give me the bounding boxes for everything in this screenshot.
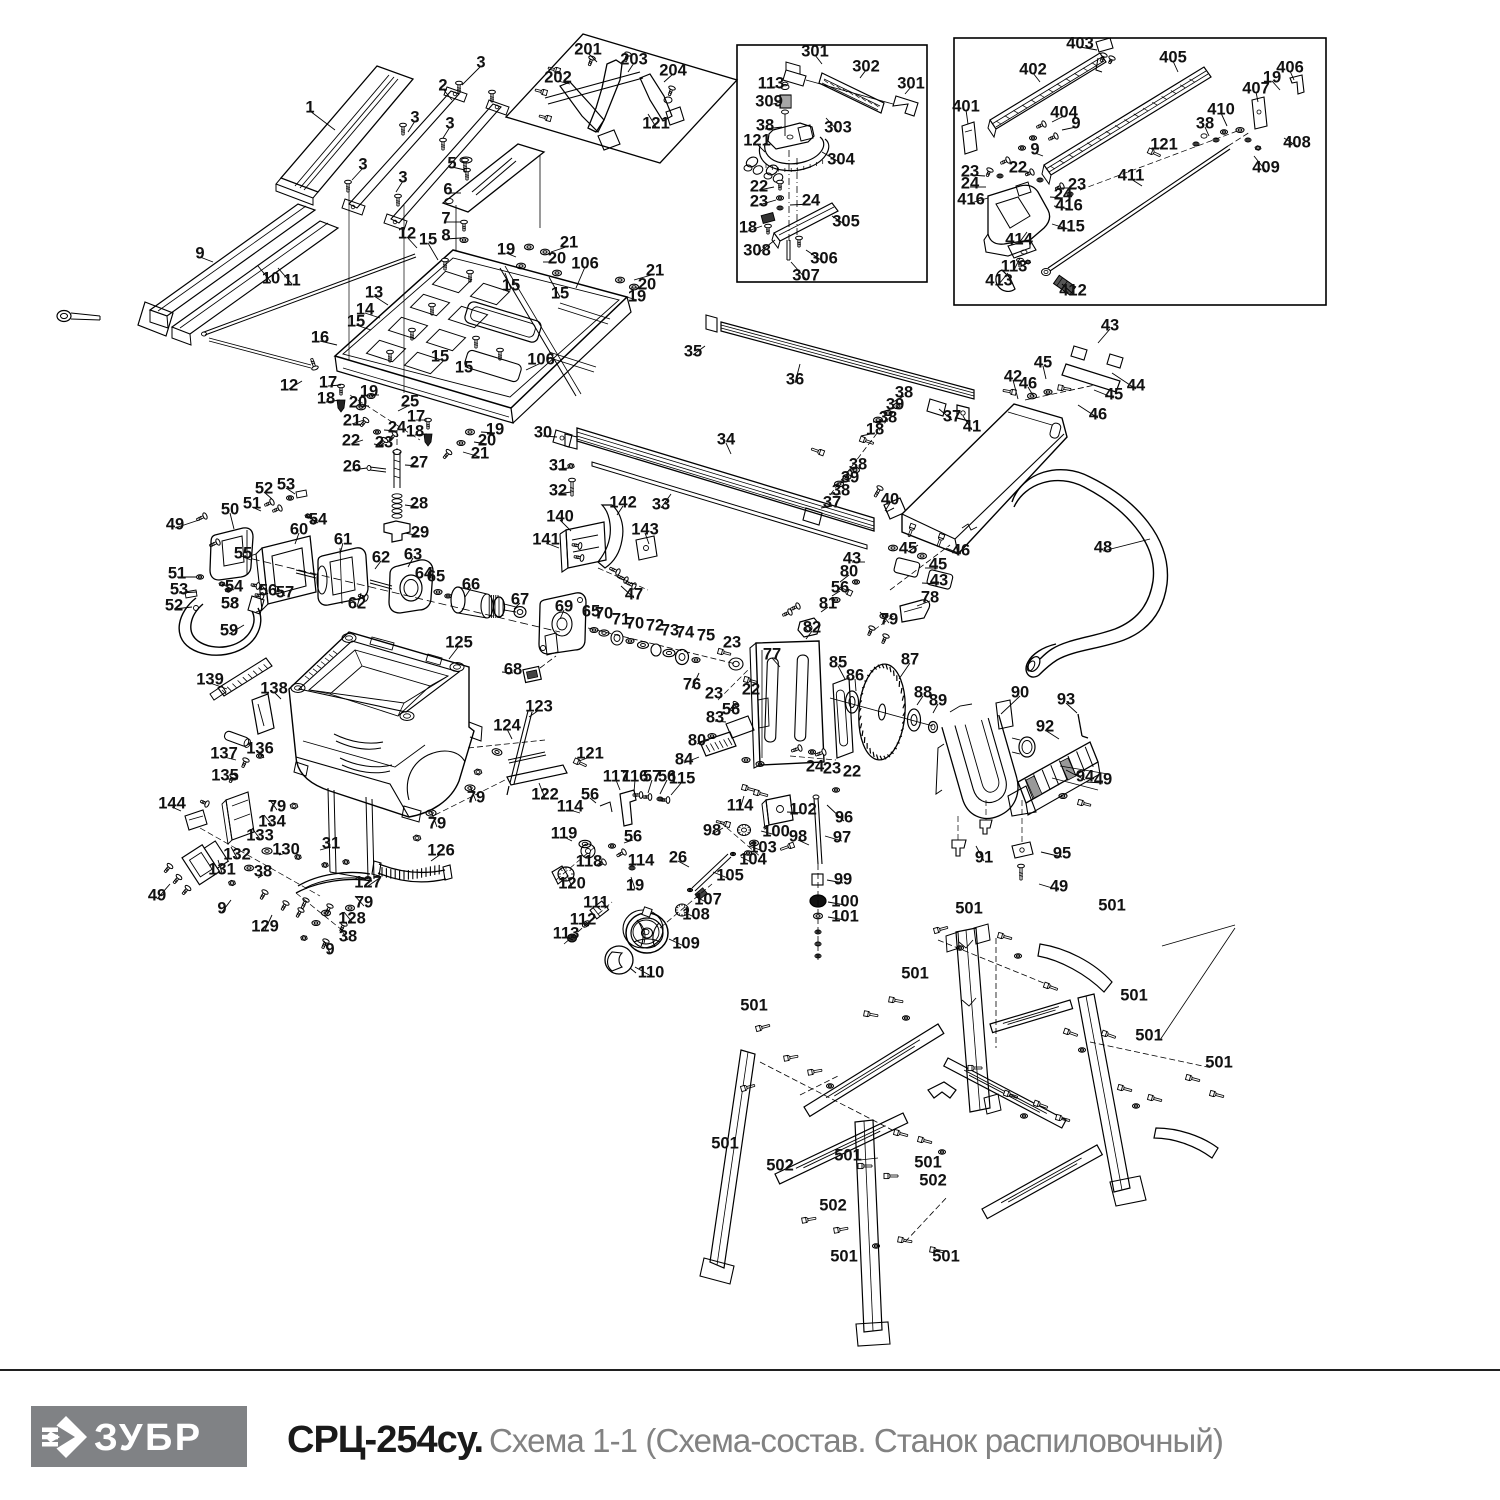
svg-text:50: 50 [221, 500, 239, 518]
svg-text:3: 3 [358, 155, 367, 173]
svg-text:56: 56 [722, 700, 740, 718]
svg-text:402: 402 [1019, 60, 1047, 78]
svg-text:51: 51 [243, 494, 261, 512]
svg-text:30: 30 [534, 423, 552, 441]
svg-text:203: 203 [620, 50, 648, 68]
svg-text:21: 21 [560, 233, 578, 251]
svg-text:22: 22 [342, 431, 360, 449]
svg-text:9: 9 [1030, 140, 1039, 158]
svg-text:501: 501 [830, 1247, 858, 1265]
svg-text:49: 49 [148, 886, 166, 904]
svg-text:121: 121 [642, 114, 670, 132]
svg-text:18: 18 [739, 218, 757, 236]
svg-text:22: 22 [843, 762, 861, 780]
svg-text:131: 131 [208, 860, 236, 878]
svg-text:37: 37 [823, 493, 841, 511]
svg-text:36: 36 [786, 370, 804, 388]
svg-text:415: 415 [1057, 217, 1085, 235]
svg-text:306: 306 [810, 249, 838, 267]
svg-text:29: 29 [411, 523, 429, 541]
svg-text:202: 202 [544, 68, 572, 86]
svg-text:9: 9 [1071, 114, 1080, 132]
svg-text:411: 411 [1118, 166, 1145, 184]
svg-text:114: 114 [727, 796, 754, 814]
svg-text:97: 97 [833, 828, 851, 846]
svg-text:62: 62 [348, 594, 366, 612]
svg-text:9: 9 [217, 899, 226, 917]
svg-text:12: 12 [280, 376, 298, 394]
svg-text:501: 501 [1098, 896, 1126, 914]
svg-text:501: 501 [932, 1247, 960, 1265]
svg-text:84: 84 [675, 750, 694, 768]
svg-text:106: 106 [571, 254, 599, 272]
svg-text:65: 65 [427, 567, 445, 585]
svg-text:80: 80 [688, 731, 706, 749]
svg-text:401: 401 [952, 97, 980, 115]
svg-text:120: 120 [558, 874, 586, 892]
svg-text:69: 69 [555, 597, 573, 615]
svg-text:61: 61 [334, 530, 352, 548]
svg-text:115: 115 [669, 769, 696, 787]
svg-text:93: 93 [1057, 690, 1075, 708]
svg-text:56: 56 [581, 785, 599, 803]
svg-text:201: 201 [574, 40, 602, 58]
svg-text:15: 15 [551, 284, 569, 302]
svg-text:90: 90 [1011, 683, 1029, 701]
svg-text:45: 45 [1105, 385, 1123, 403]
svg-text:10: 10 [262, 269, 280, 287]
svg-text:18: 18 [406, 422, 424, 440]
svg-text:121: 121 [743, 131, 771, 149]
svg-text:21: 21 [471, 444, 489, 462]
svg-text:1: 1 [305, 98, 314, 116]
svg-text:109: 109 [672, 934, 700, 952]
svg-text:110: 110 [638, 963, 665, 981]
svg-text:15: 15 [431, 347, 449, 365]
svg-text:19: 19 [626, 876, 644, 894]
svg-text:31: 31 [549, 456, 567, 474]
svg-text:22: 22 [742, 680, 760, 698]
svg-text:301: 301 [897, 74, 925, 92]
svg-text:124: 124 [493, 716, 521, 734]
svg-text:46: 46 [1019, 374, 1037, 392]
svg-text:204: 204 [659, 61, 687, 79]
svg-text:47: 47 [625, 585, 643, 603]
svg-text:63: 63 [404, 545, 422, 563]
svg-text:49: 49 [1094, 770, 1112, 788]
svg-text:77: 77 [763, 645, 781, 663]
svg-text:305: 305 [832, 212, 860, 230]
svg-text:24: 24 [802, 191, 821, 209]
svg-text:19: 19 [497, 240, 515, 258]
svg-text:49: 49 [1050, 877, 1068, 895]
svg-text:11: 11 [283, 271, 300, 289]
svg-text:91: 91 [975, 848, 993, 866]
svg-text:92: 92 [1036, 717, 1054, 735]
svg-text:16: 16 [311, 328, 329, 346]
svg-text:79: 79 [428, 814, 446, 832]
svg-text:114: 114 [557, 797, 584, 815]
svg-text:35: 35 [684, 342, 702, 360]
svg-text:48: 48 [1094, 538, 1112, 556]
svg-text:3: 3 [476, 53, 485, 71]
svg-text:403: 403 [1066, 34, 1094, 52]
svg-text:122: 122 [531, 785, 559, 803]
svg-text:409: 409 [1252, 158, 1280, 176]
svg-text:6: 6 [443, 180, 452, 198]
svg-text:19: 19 [628, 287, 646, 305]
svg-text:20: 20 [349, 393, 367, 411]
svg-text:21: 21 [343, 411, 361, 429]
svg-text:13: 13 [365, 283, 383, 301]
svg-text:138: 138 [260, 679, 288, 697]
svg-text:56: 56 [259, 581, 277, 599]
svg-text:86: 86 [846, 666, 864, 684]
svg-text:70: 70 [595, 604, 613, 622]
svg-text:9: 9 [195, 244, 204, 262]
svg-text:85: 85 [829, 653, 847, 671]
svg-text:501: 501 [1205, 1053, 1233, 1071]
svg-text:501: 501 [1135, 1026, 1163, 1044]
svg-text:416: 416 [1055, 196, 1083, 214]
svg-text:501: 501 [955, 899, 983, 917]
svg-text:405: 405 [1159, 48, 1187, 66]
svg-text:26: 26 [669, 848, 687, 866]
svg-text:133: 133 [246, 826, 274, 844]
svg-text:141: 141 [532, 530, 560, 548]
svg-text:60: 60 [290, 520, 308, 538]
svg-text:38: 38 [254, 862, 272, 880]
svg-text:43: 43 [930, 571, 948, 589]
svg-text:130: 130 [272, 840, 300, 858]
svg-text:135: 135 [211, 766, 239, 784]
svg-text:89: 89 [929, 691, 947, 709]
svg-text:106: 106 [527, 350, 555, 368]
svg-text:501: 501 [711, 1134, 739, 1152]
svg-text:2: 2 [438, 76, 447, 94]
svg-text:408: 408 [1283, 133, 1311, 151]
svg-text:129: 129 [251, 917, 279, 935]
svg-text:45: 45 [899, 539, 917, 557]
svg-text:95: 95 [1053, 844, 1071, 862]
svg-text:55: 55 [234, 544, 252, 562]
svg-text:87: 87 [901, 650, 919, 668]
svg-text:81: 81 [819, 594, 837, 612]
svg-text:54: 54 [225, 577, 244, 595]
svg-text:119: 119 [551, 824, 578, 842]
svg-text:413: 413 [985, 271, 1013, 289]
svg-text:8: 8 [441, 226, 450, 244]
svg-text:40: 40 [881, 490, 899, 508]
svg-text:136: 136 [246, 739, 274, 757]
svg-text:144: 144 [158, 794, 186, 812]
svg-text:121: 121 [1150, 135, 1178, 153]
svg-text:114: 114 [628, 851, 655, 869]
svg-text:37: 37 [943, 407, 961, 425]
svg-text:99: 99 [834, 870, 852, 888]
svg-text:5: 5 [447, 154, 456, 172]
svg-text:307: 307 [792, 266, 820, 284]
svg-text:302: 302 [852, 57, 880, 75]
svg-text:32: 32 [549, 481, 567, 499]
svg-text:501: 501 [834, 1146, 862, 1164]
svg-text:34: 34 [717, 430, 736, 448]
svg-text:143: 143 [631, 520, 659, 538]
svg-text:26: 26 [343, 457, 361, 475]
svg-text:68: 68 [504, 660, 522, 678]
svg-text:137: 137 [210, 744, 238, 762]
svg-text:125: 125 [445, 633, 473, 651]
svg-text:Схема 1-1 (Схема-состав. Стано: Схема 1-1 (Схема-состав. Станок распилов… [489, 1422, 1223, 1459]
svg-text:70: 70 [626, 614, 644, 632]
svg-text:502: 502 [766, 1156, 794, 1174]
svg-text:59: 59 [220, 621, 238, 639]
svg-text:56: 56 [624, 827, 642, 845]
svg-text:46: 46 [952, 541, 970, 559]
svg-text:309: 309 [755, 92, 783, 110]
svg-text:82: 82 [803, 618, 821, 636]
svg-text:113: 113 [553, 924, 580, 942]
svg-text:62: 62 [372, 548, 390, 566]
svg-text:101: 101 [831, 907, 859, 925]
svg-text:140: 140 [546, 507, 574, 525]
svg-text:18: 18 [866, 420, 884, 438]
svg-text:105: 105 [716, 866, 744, 884]
svg-text:416: 416 [957, 190, 985, 208]
svg-text:23: 23 [375, 433, 393, 451]
svg-text:118: 118 [576, 852, 603, 870]
svg-text:113: 113 [758, 74, 785, 92]
svg-text:142: 142 [609, 493, 637, 511]
svg-text:57: 57 [276, 583, 294, 601]
svg-text:53: 53 [277, 475, 295, 493]
svg-text:96: 96 [835, 808, 853, 826]
svg-text:304: 304 [827, 150, 855, 168]
svg-text:52: 52 [165, 596, 183, 614]
svg-text:27: 27 [410, 453, 428, 471]
svg-text:121: 121 [576, 744, 604, 762]
svg-text:7: 7 [441, 209, 450, 227]
svg-text:80: 80 [840, 562, 858, 580]
svg-text:43: 43 [1101, 316, 1119, 334]
svg-text:3: 3 [445, 114, 454, 132]
svg-text:3: 3 [410, 108, 419, 126]
svg-text:23: 23 [750, 192, 768, 210]
svg-text:412: 412 [1059, 281, 1087, 299]
svg-text:23: 23 [705, 684, 723, 702]
svg-text:123: 123 [525, 697, 553, 715]
svg-text:111: 111 [583, 893, 609, 911]
svg-text:28: 28 [410, 494, 428, 512]
svg-text:15: 15 [419, 230, 437, 248]
svg-text:45: 45 [1034, 353, 1052, 371]
svg-text:407: 407 [1242, 79, 1270, 97]
svg-text:127: 127 [354, 873, 382, 891]
svg-text:9: 9 [325, 940, 334, 958]
svg-text:49: 49 [166, 515, 184, 533]
svg-text:103: 103 [749, 838, 777, 856]
svg-text:ЗУБР: ЗУБР [94, 1417, 203, 1459]
svg-text:108: 108 [682, 905, 710, 923]
svg-text:23: 23 [723, 633, 741, 651]
svg-text:100: 100 [762, 822, 790, 840]
svg-text:308: 308 [743, 241, 771, 259]
svg-text:502: 502 [819, 1196, 847, 1214]
svg-text:22: 22 [1009, 158, 1027, 176]
svg-text:67: 67 [511, 590, 529, 608]
svg-text:78: 78 [921, 588, 939, 606]
svg-text:38: 38 [339, 927, 357, 945]
svg-text:15: 15 [455, 358, 473, 376]
svg-text:12: 12 [398, 224, 416, 242]
svg-text:66: 66 [462, 575, 480, 593]
svg-text:31: 31 [322, 834, 340, 852]
svg-text:301: 301 [801, 42, 829, 60]
svg-text:18: 18 [317, 389, 335, 407]
svg-text:501: 501 [914, 1153, 942, 1171]
svg-text:139: 139 [196, 670, 224, 688]
svg-text:38: 38 [1196, 114, 1214, 132]
svg-text:44: 44 [1127, 376, 1146, 394]
svg-text:79: 79 [880, 610, 898, 628]
svg-text:303: 303 [824, 118, 852, 136]
svg-text:74: 74 [676, 623, 695, 641]
svg-text:501: 501 [1120, 986, 1148, 1004]
svg-text:15: 15 [347, 312, 365, 330]
svg-text:15: 15 [502, 276, 520, 294]
svg-text:502: 502 [919, 1171, 947, 1189]
svg-text:54: 54 [309, 510, 328, 528]
svg-text:23: 23 [823, 759, 841, 777]
svg-text:58: 58 [221, 594, 239, 612]
svg-text:СРЦ-254су.: СРЦ-254су. [287, 1419, 483, 1461]
svg-text:128: 128 [338, 909, 366, 927]
svg-text:126: 126 [427, 841, 455, 859]
svg-text:75: 75 [697, 626, 715, 644]
svg-text:20: 20 [548, 249, 566, 267]
svg-text:3: 3 [398, 168, 407, 186]
svg-text:41: 41 [963, 417, 981, 435]
svg-text:76: 76 [683, 675, 701, 693]
svg-text:98: 98 [789, 827, 807, 845]
svg-text:102: 102 [789, 800, 817, 818]
svg-text:46: 46 [1089, 405, 1107, 423]
svg-text:79: 79 [467, 788, 485, 806]
svg-text:33: 33 [652, 495, 670, 513]
svg-text:501: 501 [901, 964, 929, 982]
svg-text:414: 414 [1005, 230, 1033, 248]
svg-text:501: 501 [740, 996, 768, 1014]
svg-text:98: 98 [703, 821, 721, 839]
